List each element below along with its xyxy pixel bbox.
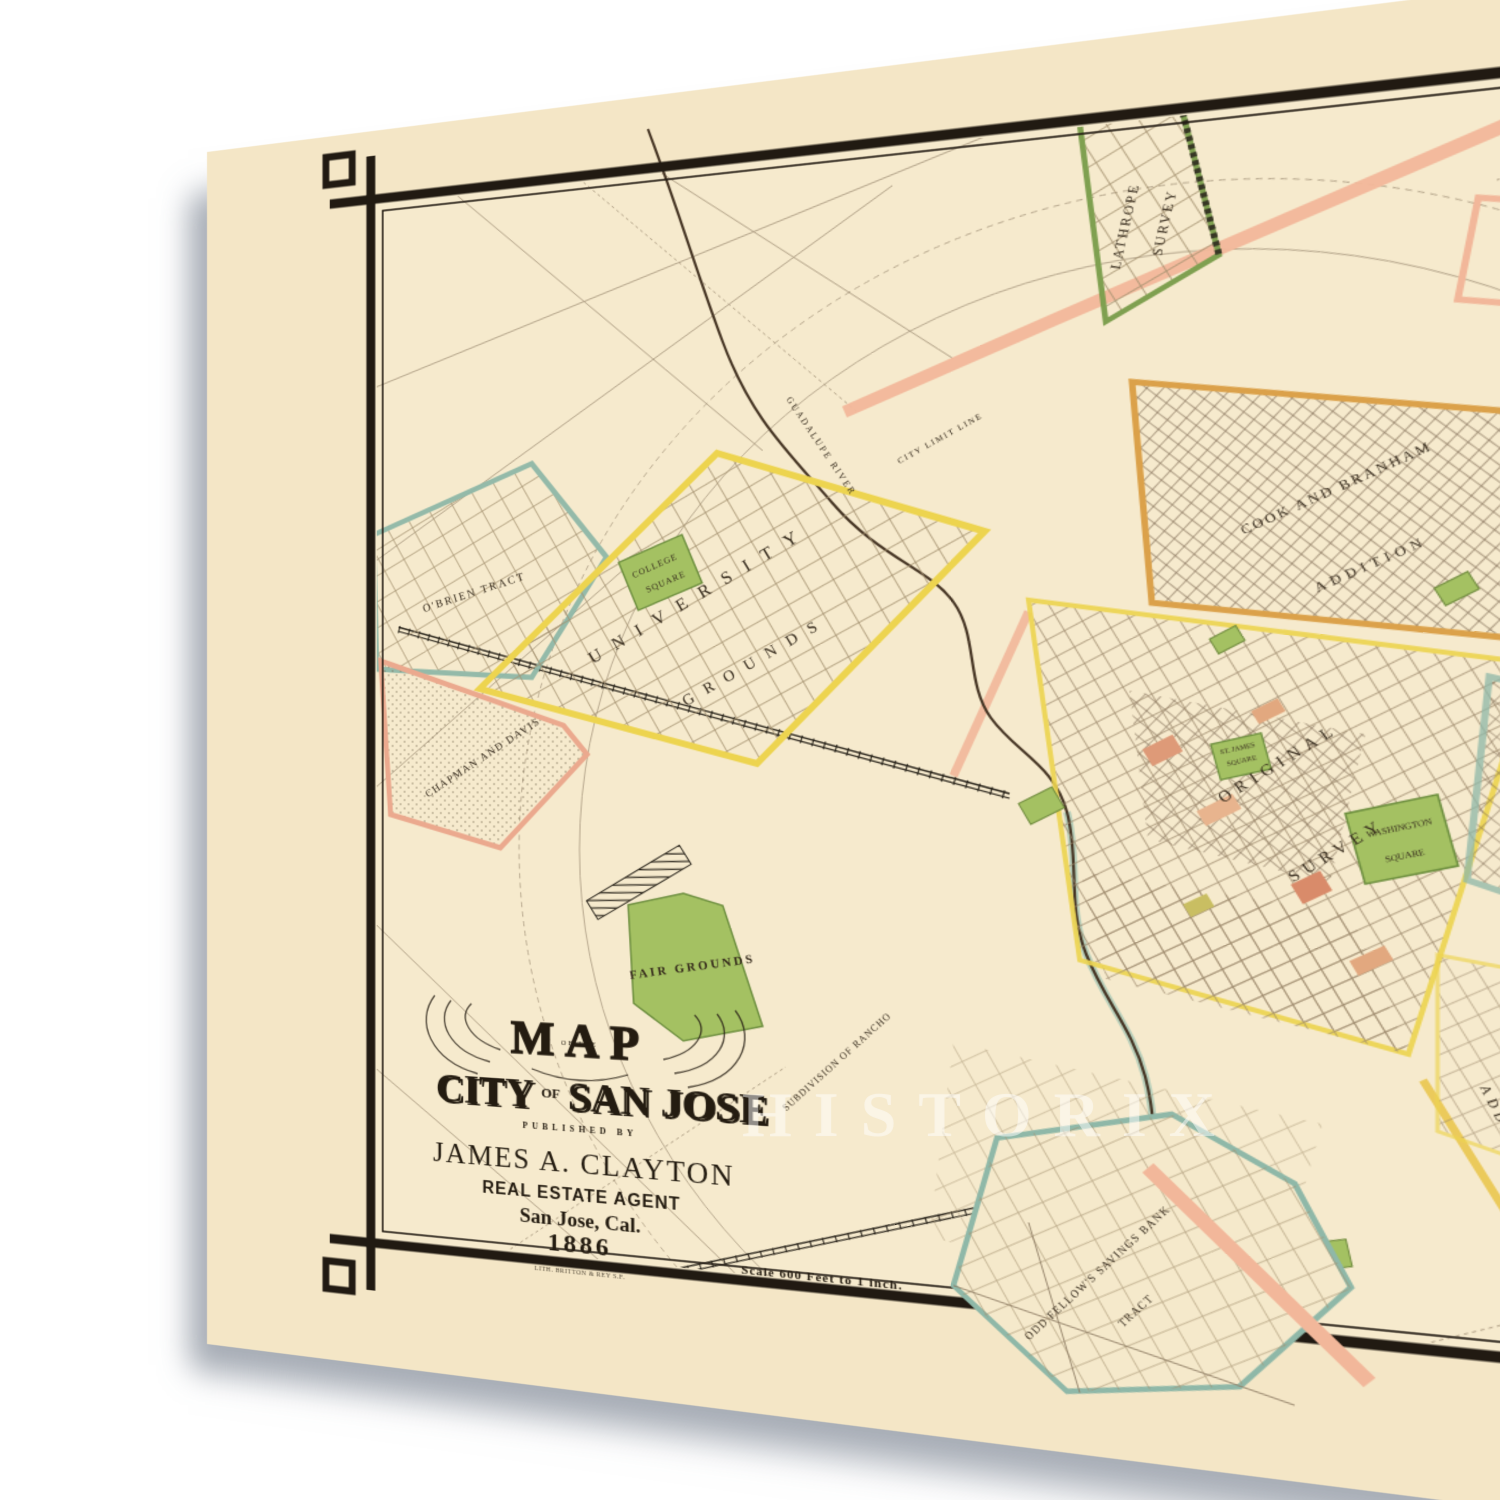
map-poster: LATHROPE SURVEY O'BRIEN TRACT UNIVERSITY… <box>207 0 1500 1500</box>
cartouche-of: OF <box>541 1085 560 1102</box>
map-artwork: LATHROPE SURVEY O'BRIEN TRACT UNIVERSITY… <box>207 0 1500 1500</box>
product-photo: LATHROPE SURVEY O'BRIEN TRACT UNIVERSITY… <box>0 0 1500 1500</box>
cartouche-city: CITY <box>436 1064 534 1116</box>
